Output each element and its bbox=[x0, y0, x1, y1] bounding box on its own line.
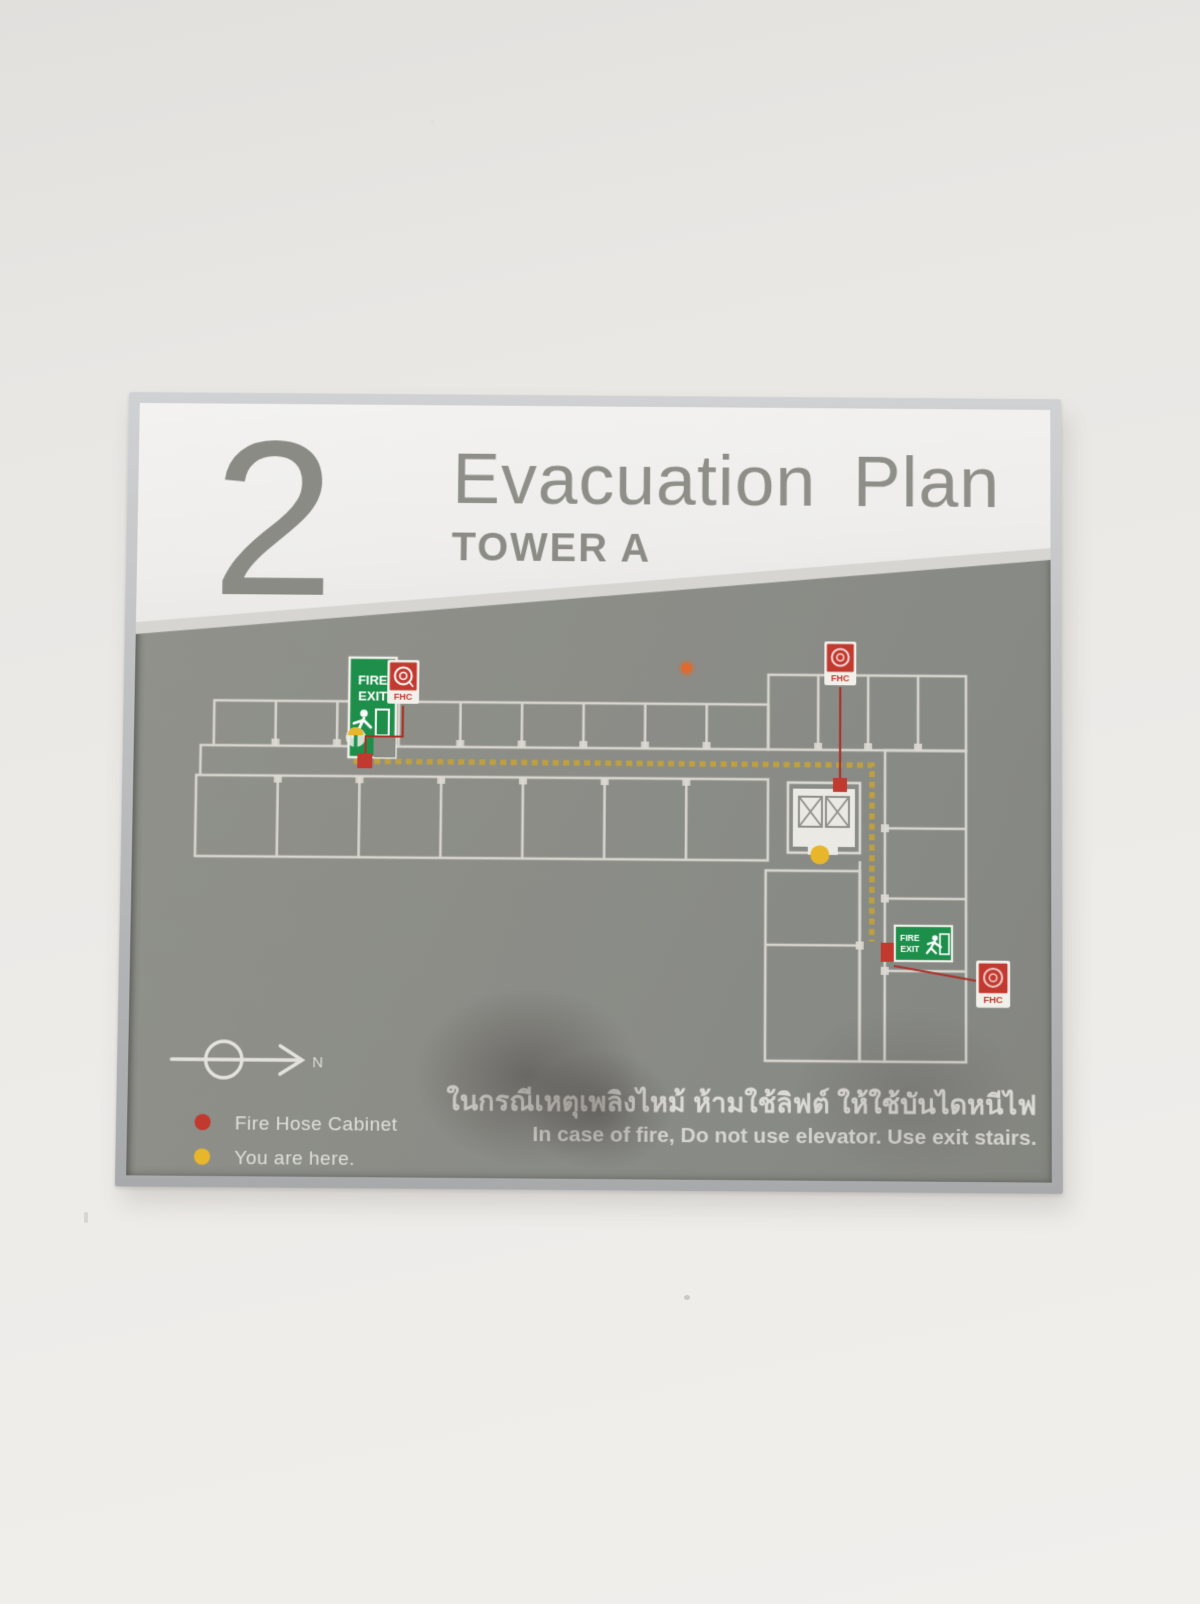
you-are-here-dot bbox=[810, 845, 829, 864]
evacuation-plan-sign: 2 Evacuation Plan TOWER A bbox=[115, 392, 1063, 1194]
fhc-marker-2 bbox=[833, 778, 847, 792]
fhc-icon-1: FHC bbox=[387, 660, 419, 704]
wall-speck bbox=[684, 1295, 690, 1300]
fhc-label: FHC bbox=[394, 692, 413, 702]
fire-exit-text-line2: EXIT bbox=[358, 688, 387, 703]
floor-plan-map: FIRE EXIT bbox=[126, 403, 1052, 1183]
wall-speck bbox=[84, 1212, 88, 1223]
fire-exit-sign-secondary: FIRE EXIT bbox=[895, 926, 952, 962]
fhc-label: FHC bbox=[831, 673, 850, 683]
wall-speck bbox=[430, 120, 435, 124]
legend-label-you-are-here: You are here. bbox=[234, 1148, 355, 1170]
sign-panel: 2 Evacuation Plan TOWER A bbox=[126, 403, 1052, 1183]
north-label: N bbox=[312, 1054, 323, 1071]
legend-label-fhc: Fire Hose Cabinet bbox=[235, 1113, 398, 1136]
fhc-marker-3 bbox=[881, 943, 894, 962]
notice-thai: ในกรณีเหตุเพลิงไหม้ ห้ามใช้ลิฟต์ ให้ใช้บ… bbox=[446, 1084, 1036, 1122]
fhc-icon-3: FHC bbox=[976, 961, 1010, 1008]
north-arrow-icon bbox=[171, 1041, 302, 1078]
fire-exit-text-line2: EXIT bbox=[900, 944, 920, 954]
legend-dot-fhc bbox=[194, 1114, 210, 1130]
fire-exit-text-line1: FIRE bbox=[358, 672, 388, 687]
elevator-core bbox=[788, 783, 860, 856]
fhc-marker-1 bbox=[357, 753, 372, 768]
fhc-label: FHC bbox=[983, 995, 1003, 1006]
floor-plan-walls bbox=[192, 670, 966, 1062]
reflection-dot bbox=[678, 659, 696, 677]
map-legend: Fire Hose Cabinet You are here. bbox=[194, 1113, 398, 1171]
legend-dot-you-are-here bbox=[194, 1148, 210, 1164]
fhc-connector-3 bbox=[894, 966, 981, 982]
fire-exit-text-line1: FIRE bbox=[900, 933, 920, 943]
notice-english: In case of fire, Do not use elevator. Us… bbox=[532, 1123, 1036, 1150]
fhc-icon-2: FHC bbox=[824, 641, 856, 685]
wall-background: 2 Evacuation Plan TOWER A bbox=[0, 0, 1200, 1604]
